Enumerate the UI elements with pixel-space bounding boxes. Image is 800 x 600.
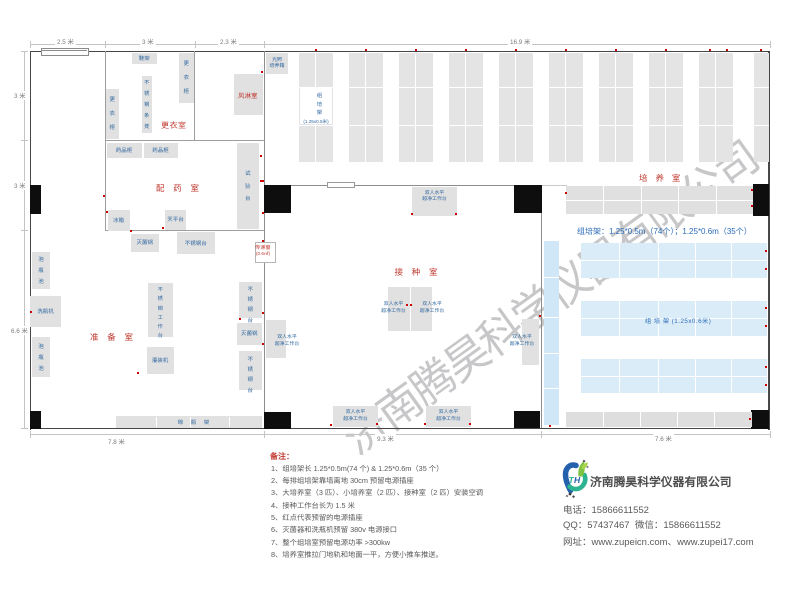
svg-text:H: H bbox=[574, 475, 581, 485]
